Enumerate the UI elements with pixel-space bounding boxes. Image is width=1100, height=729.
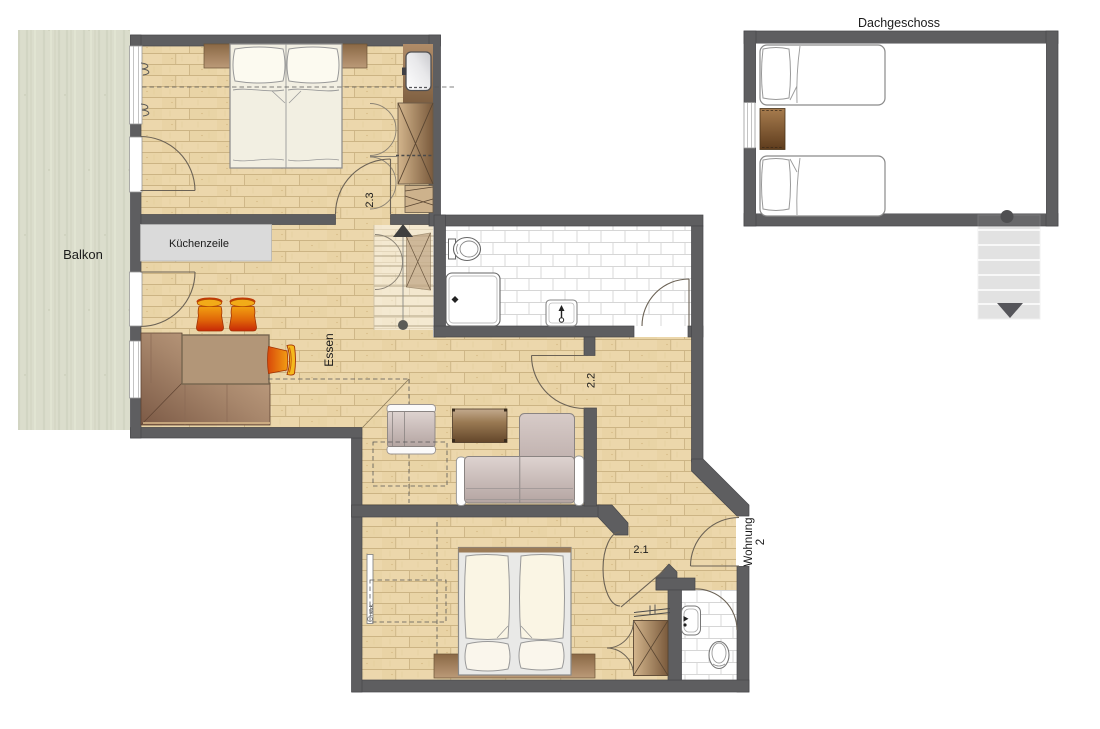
svg-text:Balkon: Balkon: [63, 247, 103, 262]
svg-text:Wohnung: Wohnung: [743, 517, 755, 566]
svg-text:2.3: 2.3: [364, 192, 376, 207]
svg-text:Essen: Essen: [322, 333, 336, 366]
svg-text:2: 2: [755, 539, 767, 545]
svg-text:2.2: 2.2: [586, 373, 598, 388]
svg-text:2.1: 2.1: [633, 544, 648, 556]
svg-text:Dachgeschoss: Dachgeschoss: [858, 16, 940, 30]
svg-text:Küchenzeile: Küchenzeile: [169, 238, 229, 250]
svg-text:Heizk.: Heizk.: [369, 604, 374, 617]
